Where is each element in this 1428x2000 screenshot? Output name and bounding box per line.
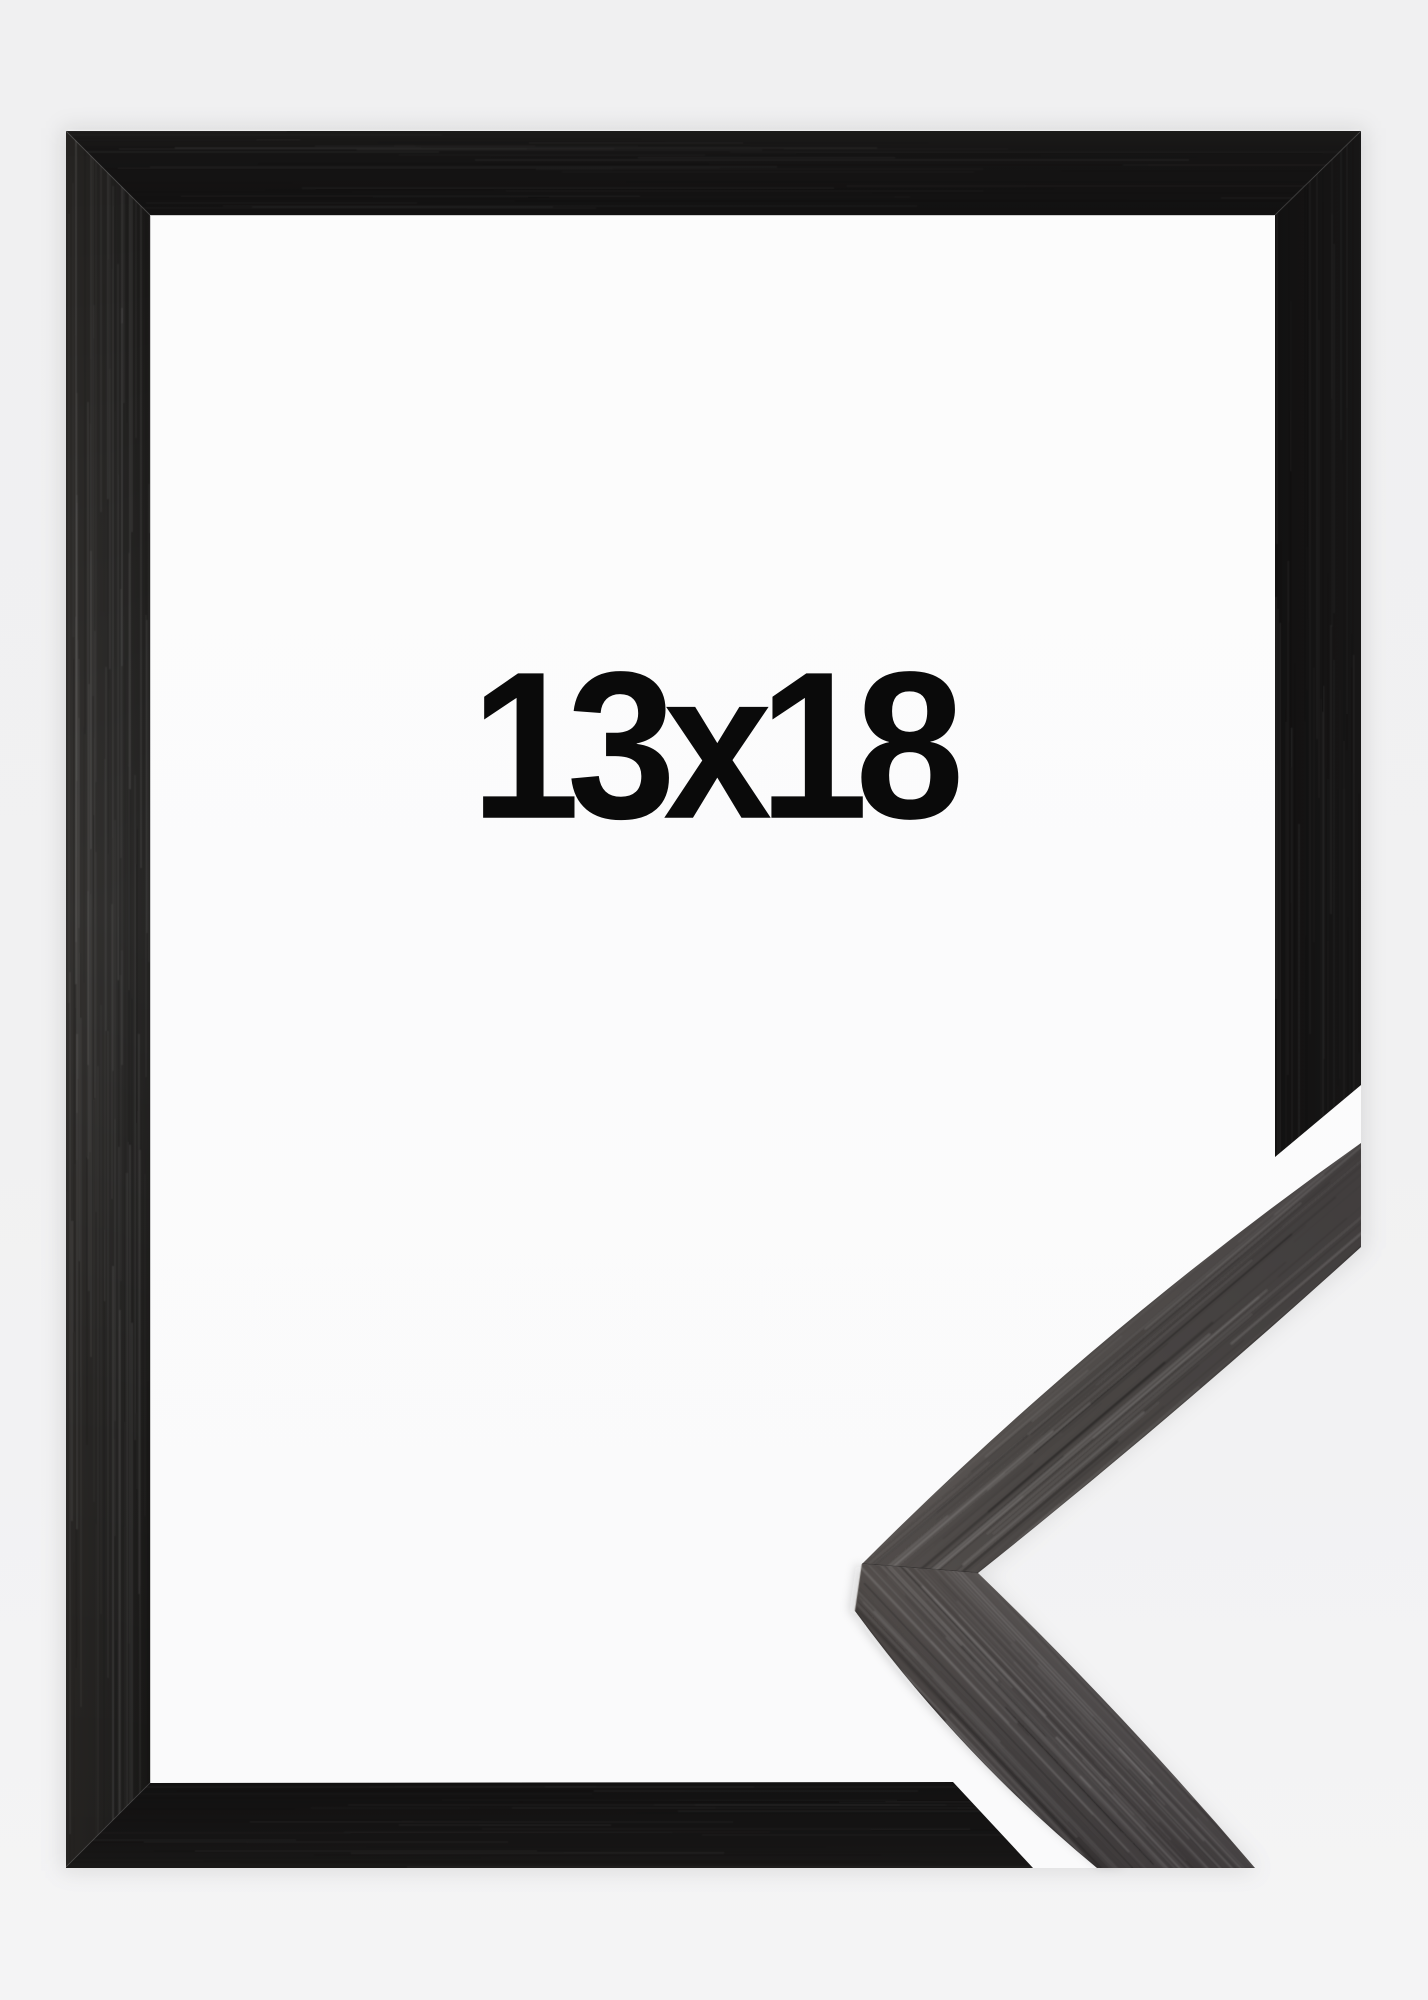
svg-text:13x18: 13x18 (471, 629, 959, 863)
